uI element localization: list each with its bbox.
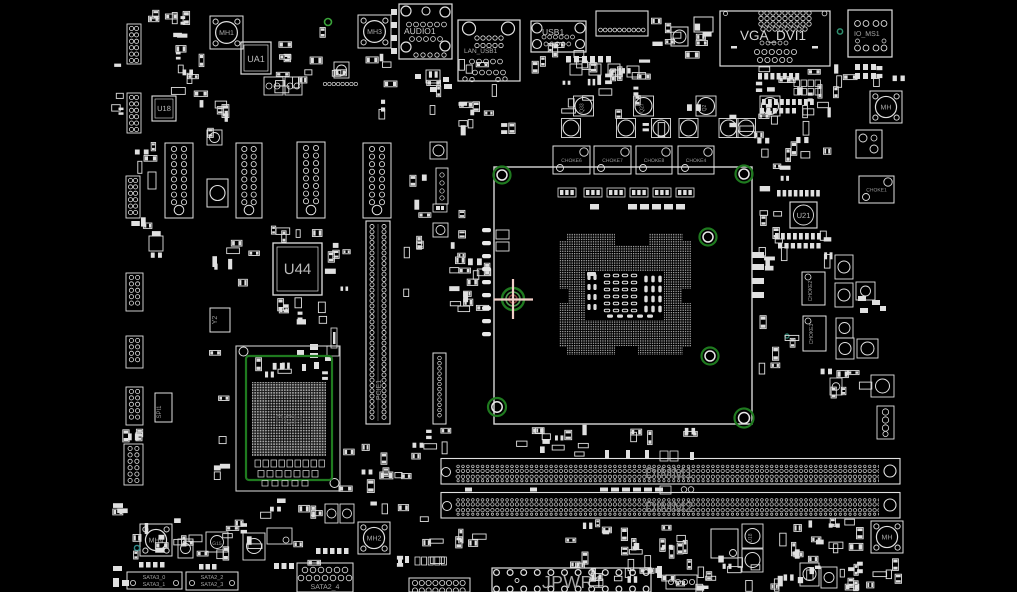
svg-text:Q2: Q2 [702,104,708,111]
svg-text:DIMM2: DIMM2 [645,499,693,516]
svg-text:Y2: Y2 [212,316,219,325]
svg-text:PCH: PCH [275,412,302,427]
svg-text:CHOKE3: CHOKE3 [809,324,815,345]
svg-text:CHOKE2: CHOKE2 [808,281,814,302]
svg-text:VGA_DVI1: VGA_DVI1 [740,28,806,43]
svg-text:IO_MS1: IO_MS1 [854,31,880,38]
svg-text:DIMM1: DIMM1 [645,465,693,482]
svg-text:SATA3_1: SATA3_1 [143,582,166,588]
svg-text:SATA2_3: SATA2_3 [201,582,224,588]
svg-text:SATA3_0: SATA3_0 [143,575,166,581]
svg-text:Q33: Q33 [580,103,586,113]
svg-text:U44: U44 [284,261,312,278]
svg-text:G15: G15 [212,541,222,547]
svg-text:CHOKE7: CHOKE7 [602,158,623,164]
svg-text:Q27: Q27 [640,103,646,113]
svg-text:MH3: MH3 [367,29,382,36]
svg-text:MH2: MH2 [367,535,382,542]
svg-text:MH1: MH1 [219,30,234,37]
svg-text:U18: U18 [748,533,754,542]
svg-text:MH: MH [881,104,892,111]
svg-text:U18: U18 [157,104,171,113]
svg-text:PCIE1: PCIE1 [376,380,383,400]
svg-text:SPI1: SPI1 [157,405,163,419]
svg-text:SATA2_4: SATA2_4 [311,584,340,591]
svg-text:LAN_USB1: LAN_USB1 [464,48,498,55]
svg-text:CHOKE1: CHOKE1 [866,187,887,193]
svg-text:CHOKE6: CHOKE6 [561,158,582,164]
svg-text:U21: U21 [797,211,811,220]
svg-text:CHOKE4: CHOKE4 [686,158,707,164]
svg-text:MH: MH [882,534,893,541]
svg-text:SATA2_2: SATA2_2 [201,575,224,581]
svg-text:UA1: UA1 [247,54,265,64]
svg-text:AUDIO1: AUDIO1 [404,26,436,36]
svg-text:CHOKE8: CHOKE8 [644,158,665,164]
